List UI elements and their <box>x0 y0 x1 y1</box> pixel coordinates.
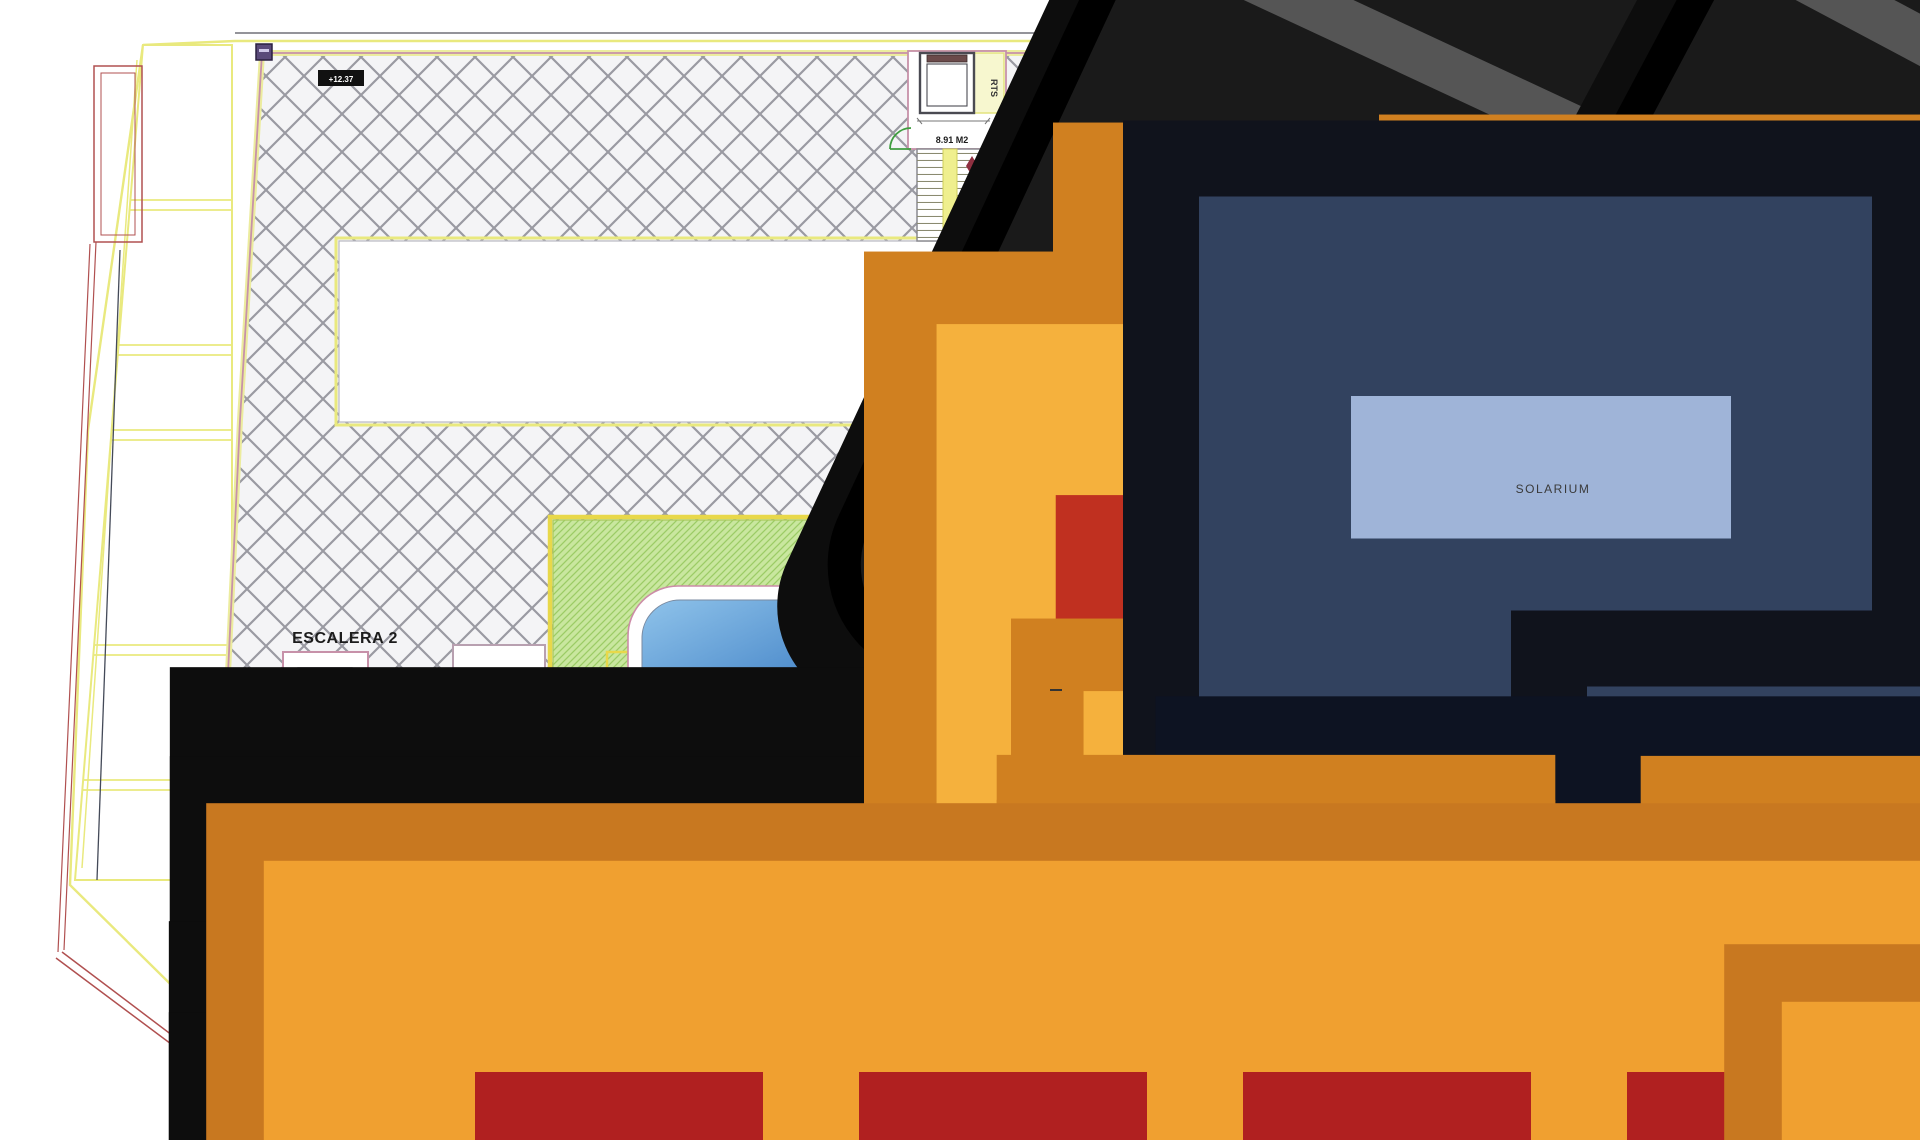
rts-label-1: RTS <box>989 79 999 97</box>
equipment-label-orange <box>1753 973 1920 1140</box>
floor-plan-canvas: PISCINA 70.18 M2 DEPURADORA 7.03 M2 ASEO… <box>0 0 1920 1140</box>
escalera2-label: ESCALERA 2 <box>292 630 398 647</box>
level-main-label: +12.37 <box>329 75 354 84</box>
equipment-label-orange <box>235 832 1920 1140</box>
escalera1-area-label: 8.91 M2 <box>936 135 969 145</box>
solarium-label: SOLARIUM <box>1516 482 1591 496</box>
floor-plan-page: PISCINA 70.18 M2 DEPURADORA 7.03 M2 ASEO… <box>0 0 1920 1140</box>
